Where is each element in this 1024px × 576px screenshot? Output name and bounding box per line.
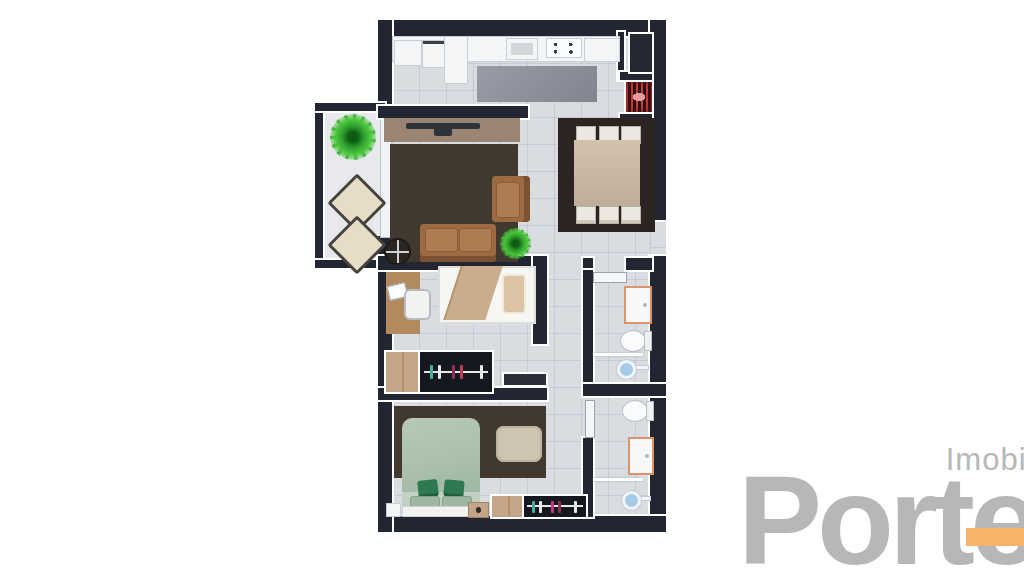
sofa-cushion	[425, 228, 458, 252]
table-lamp-icon	[476, 507, 481, 513]
clothes-item	[480, 365, 483, 379]
potted-plant-icon	[330, 114, 376, 160]
clothes-item	[438, 365, 441, 379]
bed-pillow	[502, 274, 526, 314]
clothes-item	[460, 365, 463, 379]
logo-roof-accent-icon	[962, 504, 1024, 550]
shower-partition	[593, 478, 643, 481]
dining-chair	[576, 206, 596, 224]
wall-bath1-top-right	[626, 258, 652, 270]
coffee-table	[386, 240, 409, 263]
balcony-wall-left	[315, 103, 323, 268]
kitchen-rug	[477, 66, 597, 102]
shower-head-icon	[622, 491, 641, 510]
kitchen-peninsula	[444, 36, 468, 84]
wall-grill-nook-top	[620, 72, 652, 80]
bathroom-vanity-sink	[624, 286, 652, 324]
wall-bottom	[378, 516, 666, 532]
barbecue-grill-icon	[626, 82, 652, 112]
balcony-wall-top	[315, 103, 385, 111]
wall-kitchen-living	[378, 106, 528, 118]
wardrobe-doors	[386, 352, 420, 392]
clothes-item	[539, 501, 542, 513]
wall-hallway-bath1	[583, 270, 593, 392]
refrigerator	[630, 34, 652, 72]
desk-chair	[404, 289, 431, 320]
shower-partition	[593, 353, 643, 356]
kitchen-sink	[506, 38, 538, 60]
tv-mount	[434, 126, 452, 136]
dining-chair	[621, 206, 641, 224]
clothes-item	[558, 501, 561, 513]
wall-bath1-top-left	[583, 258, 593, 270]
clothes-item	[452, 365, 455, 379]
clothes-item	[532, 501, 535, 513]
wardrobe-doors	[492, 496, 524, 517]
toilet-tank	[646, 401, 654, 421]
ottoman	[496, 426, 542, 462]
bathroom-door	[593, 272, 627, 283]
toilet	[622, 400, 648, 422]
clothes-item	[574, 501, 577, 513]
cooktop	[546, 38, 582, 58]
dining-table	[574, 140, 640, 206]
wall-bath1-bath2	[583, 384, 666, 396]
nightstand	[468, 502, 489, 518]
armchair	[492, 176, 530, 222]
brand-logo: Imobiliária Porte	[738, 438, 1024, 576]
bathroom-door	[585, 400, 595, 438]
toilet	[620, 330, 646, 352]
washer	[394, 40, 422, 66]
double-bed	[402, 418, 480, 506]
bedroom-door	[504, 374, 546, 385]
potted-plant-icon	[500, 228, 531, 259]
bathroom-vanity-sink	[628, 437, 654, 475]
kitchen-counter-right	[584, 38, 620, 62]
wardrobe-open	[524, 496, 586, 517]
nightstand	[386, 503, 401, 517]
wardrobe-open	[420, 352, 492, 392]
sofa	[420, 224, 496, 262]
floor-plan-render: Imobiliária Porte	[0, 0, 1024, 576]
sofa-cushion	[459, 228, 492, 252]
toilet-tank	[644, 331, 652, 351]
clothes-item	[430, 365, 433, 379]
tv-panel	[384, 118, 520, 142]
armchair-cushion	[496, 182, 520, 218]
clothes-rail	[424, 371, 488, 373]
dining-chair	[599, 206, 619, 224]
clothes-item	[551, 501, 554, 513]
shower-head-icon	[617, 360, 636, 379]
